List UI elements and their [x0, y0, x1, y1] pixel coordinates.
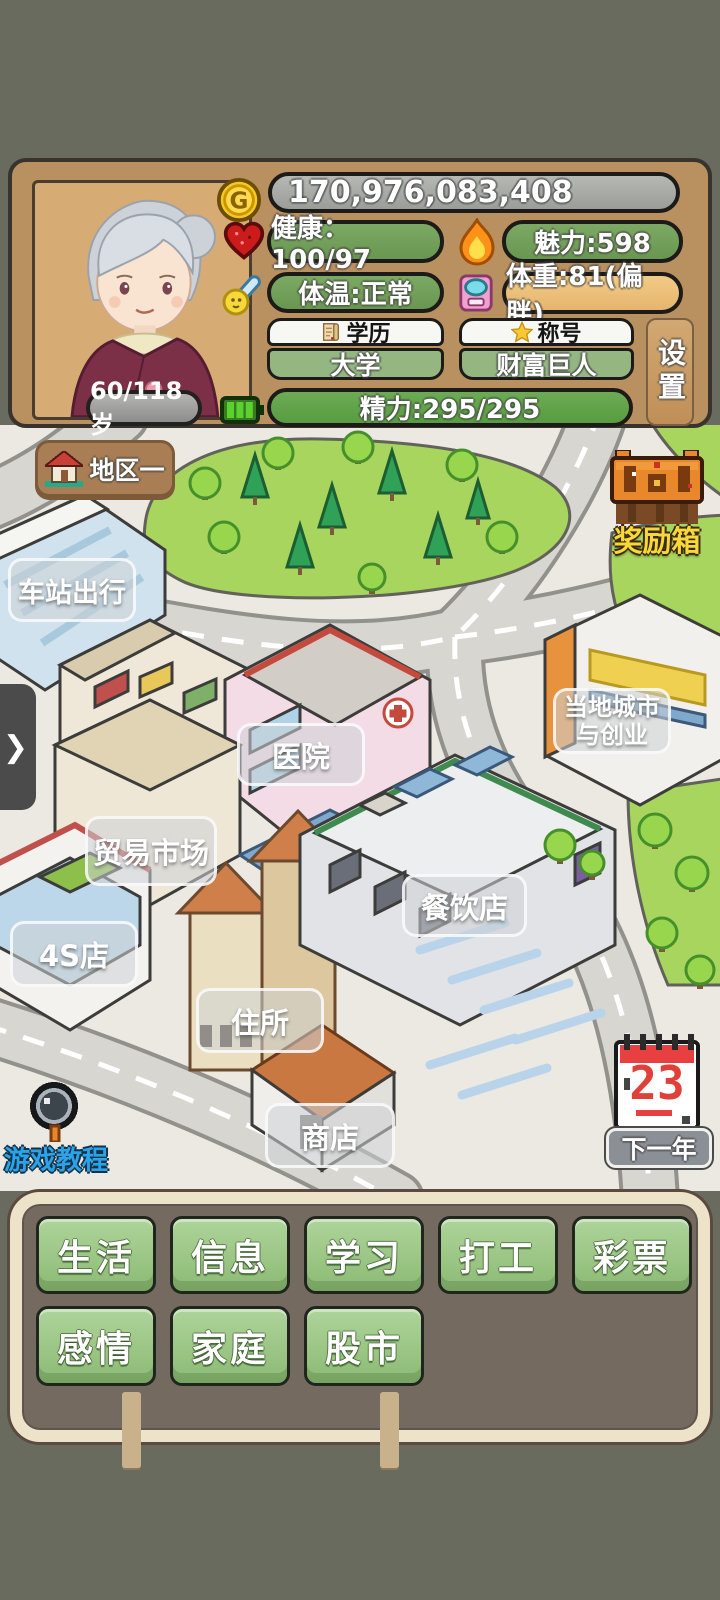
svg-text:G: G: [230, 189, 249, 215]
scroll-icon: [320, 321, 342, 343]
title-header: 称号: [459, 318, 634, 346]
sign-post-left: [122, 1392, 141, 1468]
map-label-residence[interactable]: 住所: [196, 988, 324, 1053]
battery-icon: [220, 392, 266, 428]
thermometer-icon: [220, 270, 266, 316]
map-label-hospital[interactable]: 医院: [237, 723, 365, 786]
scale-icon: [457, 271, 495, 315]
education-value[interactable]: 大学: [267, 348, 444, 380]
weight-pill: 体重:81(偏胖): [502, 272, 683, 314]
chevron-right-icon: ❯: [3, 730, 28, 765]
reward-chest-icon[interactable]: [608, 450, 706, 524]
tutorial-label[interactable]: 游戏教程: [0, 1140, 112, 1177]
city-venture-line2: 与创业: [576, 721, 648, 749]
settings-button[interactable]: 设置: [646, 318, 694, 426]
sign-post-right: [380, 1392, 399, 1468]
tutorial-magnifier-icon[interactable]: [26, 1082, 84, 1142]
calendar-day: 23: [622, 1056, 692, 1108]
action-study-button[interactable]: 学习: [304, 1216, 424, 1294]
action-life-button[interactable]: 生活: [36, 1216, 156, 1294]
title-value[interactable]: 财富巨人: [459, 348, 634, 380]
action-romance-button[interactable]: 感情: [36, 1306, 156, 1386]
health-pill: 健康：100/97: [267, 220, 444, 263]
map-label-shop[interactable]: 商店: [265, 1103, 395, 1168]
game-screen: 车站出行 医院 贸易市场 4S店 住所 商店 餐饮店 当地城市 与创业 地区一: [0, 0, 720, 1600]
coin-icon: G: [216, 177, 262, 223]
map-label-4s-store[interactable]: 4S店: [10, 921, 138, 987]
education-header: 学历: [267, 318, 444, 346]
house-icon: [45, 451, 83, 487]
region-label: 地区一: [89, 451, 164, 487]
map-label-restaurant[interactable]: 餐饮店: [402, 874, 527, 937]
map-label-station-travel[interactable]: 车站出行: [8, 558, 136, 622]
region-button[interactable]: 地区一: [35, 440, 175, 497]
education-label: 学历: [346, 316, 390, 348]
action-stock-button[interactable]: 股市: [304, 1306, 424, 1386]
money-bar: 170,976,083,408: [268, 172, 680, 213]
star-icon: [511, 321, 533, 343]
age-badge: 60/118岁: [86, 390, 202, 426]
heart-icon: [222, 220, 266, 262]
action-info-button[interactable]: 信息: [170, 1216, 290, 1294]
next-year-button[interactable]: 下一年: [606, 1128, 712, 1168]
temperature-pill: 体温:正常: [267, 272, 444, 313]
action-work-button[interactable]: 打工: [438, 1216, 558, 1294]
city-venture-line1: 当地城市: [564, 693, 660, 721]
map-label-trade-market[interactable]: 贸易市场: [85, 816, 217, 886]
title-label: 称号: [537, 316, 581, 348]
action-family-button[interactable]: 家庭: [170, 1306, 290, 1386]
reward-box-label[interactable]: 奖励箱: [596, 518, 718, 560]
map-label-city-venture[interactable]: 当地城市 与创业: [553, 688, 671, 754]
fire-icon: [455, 218, 499, 266]
energy-bar: 精力:295/295: [267, 388, 633, 427]
action-lottery-button[interactable]: 彩票: [572, 1216, 692, 1294]
side-panel-toggle[interactable]: ❯: [0, 684, 36, 810]
